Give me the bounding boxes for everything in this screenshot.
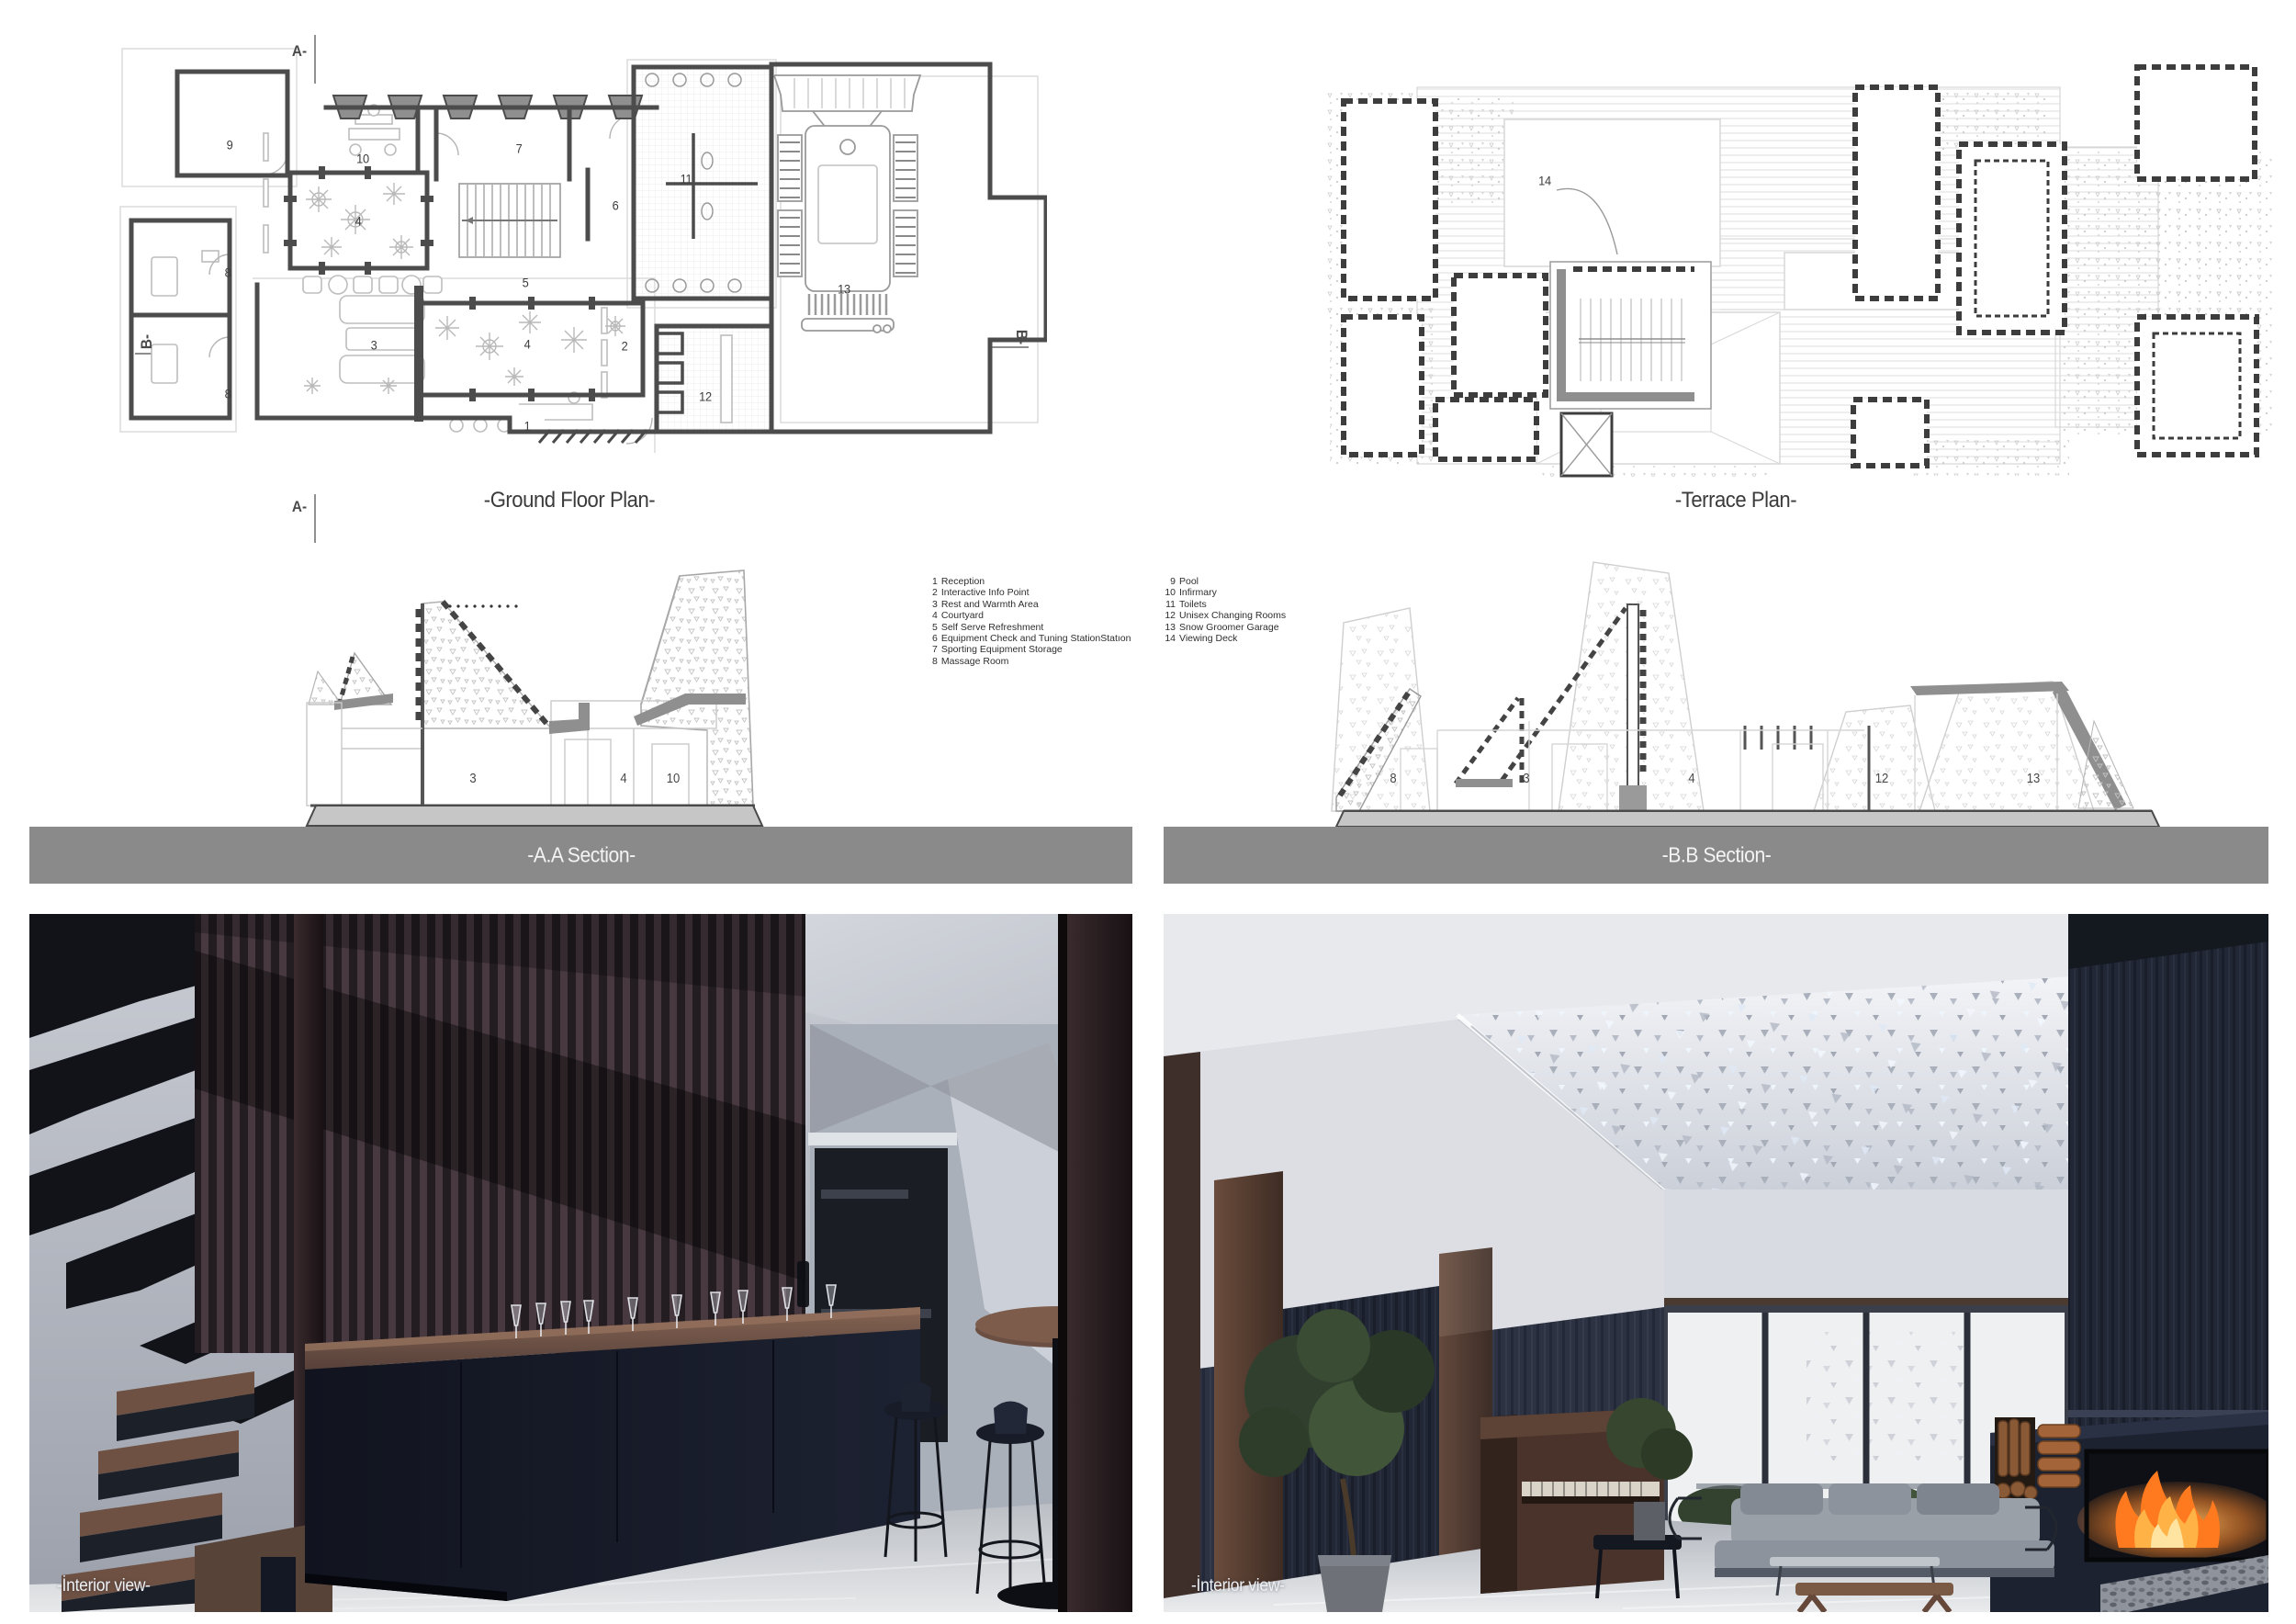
section-marker-a-bottom: A- <box>292 498 307 516</box>
section-marker-b-left: B- <box>138 334 156 349</box>
legend-text: Unisex Changing Rooms <box>1179 610 1286 621</box>
legend-text: Self Serve Refreshment <box>941 622 1043 633</box>
legend-item: 1Reception <box>932 576 1157 587</box>
firebox <box>2077 1451 2268 1560</box>
legend-num: 7 <box>932 644 938 655</box>
section-room-label: 4 <box>620 772 626 786</box>
room-label: 13 <box>838 283 850 297</box>
legend-num: 10 <box>1163 587 1176 598</box>
aa-section-title-bar: -A.A Section- <box>29 827 1132 884</box>
section-room-label: 3 <box>469 772 476 786</box>
room-label: 12 <box>699 390 712 404</box>
legend-num: 2 <box>932 587 938 598</box>
legend-text: Courtyard <box>941 610 984 621</box>
section-marker-b-right: B- <box>1012 330 1030 344</box>
legend-item: 11Toilets <box>1163 599 1345 610</box>
aa-central-roof <box>419 602 551 806</box>
elevator-shaft <box>1561 413 1612 476</box>
room-label: 7 <box>516 142 523 156</box>
room-label: 10 <box>356 152 369 166</box>
legend-num: 3 <box>932 599 938 610</box>
legend-text: Equipment Check and Tuning StationStatıo… <box>941 633 1131 644</box>
interior-view-lounge-render <box>1164 914 2268 1612</box>
legend-column-left: 1Reception 2Interactive Info Point 3Rest… <box>932 576 1157 667</box>
interior-view-label-left: -İnterior view- <box>57 1576 151 1596</box>
legend-item: 12Unisex Changing Rooms <box>1163 610 1345 621</box>
bb-section-title-bar: -B.B Section- <box>1164 827 2268 884</box>
legend-item: 4Courtyard <box>932 610 1157 621</box>
interior-view-label-right: -İnterior view- <box>1191 1576 1285 1596</box>
section-room-label: 3 <box>1523 772 1529 786</box>
stairs-room7 <box>459 184 560 257</box>
legend-text: Sporting Equipment Storage <box>941 644 1063 655</box>
section-marker-a-top: A- <box>292 42 307 61</box>
legend-text: Viewing Deck <box>1179 633 1237 644</box>
legend-num: 1 <box>932 576 938 587</box>
room-label: 8 <box>225 266 231 280</box>
section-room-label: 12 <box>1875 772 1889 786</box>
room-label: 8 <box>225 388 231 401</box>
legend-item: 10Infirmary <box>1163 587 1345 598</box>
legend-num: 8 <box>932 656 938 667</box>
legend-text: Snow Groomer Garage <box>1179 622 1279 633</box>
legend-num: 9 <box>1163 576 1176 587</box>
legend-num: 12 <box>1163 610 1176 621</box>
legend-item: 14Viewing Deck <box>1163 633 1345 644</box>
legend-item: 8Massage Room <box>932 656 1157 667</box>
legend-num: 4 <box>932 610 938 621</box>
legend-num: 13 <box>1163 622 1176 633</box>
legend-text: Pool <box>1179 576 1199 587</box>
room-label: 11 <box>681 173 692 186</box>
legend-item: 5Self Serve Refreshment <box>932 622 1157 633</box>
legend-text: Rest and Warmth Area <box>941 599 1039 610</box>
interior-view-bar-render <box>29 914 1132 1612</box>
presentation-board: 9 10 7 6 4 5 11 8 8 3 4 1 2 12 13 A- A- … <box>0 0 2296 1624</box>
room-label: 2 <box>622 340 628 354</box>
room-label: 1 <box>524 420 531 434</box>
bb-section-title: -B.B Section- <box>1661 843 1771 868</box>
bar-right-column-edge <box>1058 914 1067 1612</box>
ground-floor-plan-drawing <box>115 23 1047 560</box>
bar-right-column <box>1065 914 1132 1612</box>
legend-item: 3Rest and Warmth Area <box>932 599 1157 610</box>
aa-right-roof <box>641 570 753 806</box>
section-room-label: 4 <box>1688 772 1694 786</box>
legend-num: 6 <box>932 633 938 644</box>
legend-num: 11 <box>1163 599 1176 610</box>
legend-num: 14 <box>1163 633 1176 644</box>
aa-ground-band <box>307 806 762 826</box>
aa-section-title: -A.A Section- <box>527 843 636 868</box>
terrace-plan-title: -Terrace Plan- <box>1675 488 1796 513</box>
legend-item: 9Pool <box>1163 576 1345 587</box>
room-label: 3 <box>371 339 377 353</box>
bb-section-drawing <box>1318 551 2278 836</box>
room-label: 4 <box>524 338 531 352</box>
section-room-label: 13 <box>2027 772 2041 786</box>
ground-floor-plan-title: -Ground Floor Plan- <box>484 488 655 513</box>
room-label: 4 <box>355 215 362 229</box>
legend-text: Infirmary <box>1179 587 1217 598</box>
aa-left-roof <box>309 653 393 710</box>
legend-text: Massage Room <box>941 656 1009 667</box>
room-label: 6 <box>613 199 619 213</box>
room-label: 9 <box>227 139 233 152</box>
legend-item: 13Snow Groomer Garage <box>1163 622 1345 633</box>
legend-text: Interactive Info Point <box>941 587 1030 598</box>
legend-text: Reception <box>941 576 985 587</box>
changing-floor-hatch <box>658 328 770 430</box>
bb-ground-band <box>1336 811 2159 827</box>
terrace-plan-drawing <box>1325 41 2276 478</box>
legend-item: 7Sporting Equipment Storage <box>932 644 1157 655</box>
room-label: 5 <box>523 276 529 290</box>
section-room-label: 8 <box>1390 772 1396 786</box>
section-room-label: 10 <box>667 772 681 786</box>
legend-column-right: 9Pool 10Infirmary 11Toilets 12Unisex Cha… <box>1163 576 1345 644</box>
legend-num: 5 <box>932 622 938 633</box>
room-label: 14 <box>1538 175 1551 188</box>
legend-text: Toilets <box>1179 599 1207 610</box>
legend-item: 2Interactive Info Point <box>932 587 1157 598</box>
legend-item: 6Equipment Check and Tuning StationStatı… <box>932 633 1157 644</box>
